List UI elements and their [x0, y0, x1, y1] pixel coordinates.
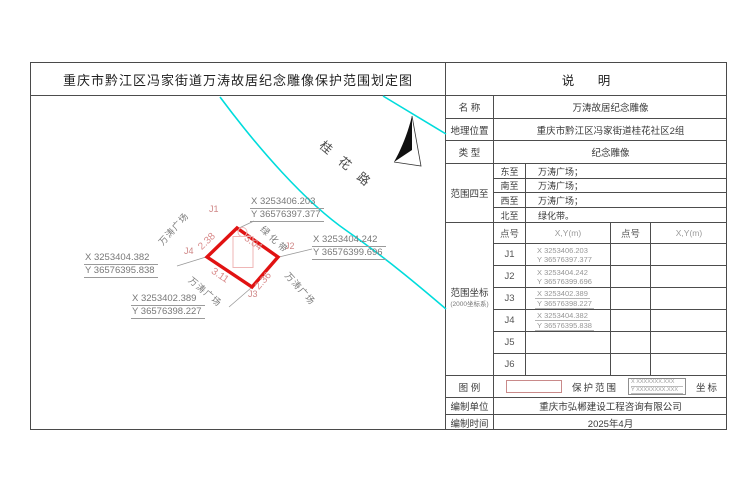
point-y: Y 36576399.696: [535, 277, 594, 286]
bounds-value-west: 万涛广场；: [526, 193, 727, 207]
map-coord-j4-y: Y 36576395.838: [84, 265, 158, 278]
point-xy: X 3253404.382 Y 36576395.838: [526, 310, 610, 331]
point-id: J1: [494, 244, 525, 265]
bounds-dir-east: 东至: [494, 164, 525, 178]
point-y: Y 36576398.227: [535, 299, 594, 309]
unit-value: 重庆市弘郴建设工程咨询有限公司: [494, 398, 727, 414]
row-label-name: 名 称: [446, 96, 493, 118]
bounds-dir-north: 北至: [494, 208, 525, 222]
map-coord-j3: X 3253402.389 Y 36576398.227: [131, 293, 205, 319]
coords-label-main: 范围坐标: [450, 288, 488, 299]
map-coord-j3-y: Y 36576398.227: [131, 306, 205, 319]
protection-range-label: 保护范围: [572, 380, 618, 394]
map-coord-j1: X 3253406.203 Y 36576397.377: [250, 196, 324, 222]
bounds-value-south: 万涛广场；: [526, 179, 727, 192]
map-point-id-j4: J4: [184, 246, 194, 256]
unit-label: 编制单位: [446, 398, 493, 414]
map-point-id-j3: J3: [248, 289, 258, 299]
xy-header: X,Y(m): [526, 223, 610, 243]
map-coord-j2-y: Y 36576399.696: [312, 247, 386, 260]
bounds-dir-west: 西至: [494, 193, 525, 207]
legend-content: 保护范围 X XXXXXXX.XXX Y XXXXXXXX.XXX 坐标: [494, 376, 727, 397]
point-x: X 3253404.242: [535, 268, 590, 277]
bounds-value-north: 绿化带。: [526, 208, 727, 222]
protection-range-symbol: [506, 380, 562, 393]
drawing-sheet: 重庆市黔江区冯家街道万涛故居纪念雕像保护范围划定图 说 明 名 称 万涛故居纪念…: [0, 0, 756, 482]
map-coord-j1-x: X 3253406.203: [250, 196, 324, 209]
point-y: Y 36576395.838: [535, 321, 594, 331]
row-value-name: 万涛故居纪念雕像: [494, 96, 727, 118]
coordinate-symbol: X XXXXXXX.XXX Y XXXXXXXX.XXX: [628, 378, 686, 395]
map-point-id-j1: J1: [209, 204, 219, 214]
row-value-location: 重庆市黔江区冯家街道桂花社区2组: [494, 119, 727, 140]
point-y: Y 36576397.377: [535, 255, 594, 264]
point-id: J4: [494, 310, 525, 331]
point-id: J2: [494, 266, 525, 287]
xy-header-2: X,Y(m): [651, 223, 727, 243]
map-coord-j4-x: X 3253404.382: [84, 252, 158, 265]
point-id: J3: [494, 288, 525, 309]
point-xy: X 3253402.389 Y 36576398.227: [526, 288, 610, 309]
bounds-value-east: 万涛广场；: [526, 164, 727, 178]
map-coord-j3-x: X 3253402.389: [131, 293, 205, 306]
row-label-location: 地理位置: [446, 119, 493, 140]
map-coord-j2: X 3253404.242 Y 36576399.696: [312, 234, 386, 260]
point-xy: X 3253404.242 Y 36576399.696: [526, 266, 610, 287]
map-coord-j2-x: X 3253404.242: [312, 234, 386, 247]
point-id: J5: [494, 332, 525, 353]
coordinate-symbol-x: X XXXXXXX.XXX: [631, 379, 683, 387]
coords-label-sub: (2000坐标系): [450, 299, 488, 310]
row-label-type: 类 型: [446, 141, 493, 163]
bounds-label: 范围四至: [446, 164, 493, 222]
point-x: X 3253402.389: [535, 289, 590, 299]
notes-title: 说 明: [446, 63, 726, 95]
coords-label: 范围坐标 (2000坐标系): [446, 223, 493, 375]
point-xy: X 3253406.203 Y 36576397.377: [526, 244, 610, 265]
map-coord-j1-y: Y 36576397.377: [250, 209, 324, 222]
point-xy: [526, 354, 610, 375]
date-value: 2025年4月: [494, 415, 727, 430]
legend-label: 图 例: [446, 376, 493, 397]
coordinate-legend-label: 坐标: [696, 380, 719, 394]
point-xy: [526, 332, 610, 353]
date-label: 编制时间: [446, 415, 493, 430]
map-coord-j4: X 3253404.382 Y 36576395.838: [84, 252, 158, 278]
point-no-header: 点号: [494, 223, 525, 243]
coordinate-symbol-y: Y XXXXXXXX.XXX: [631, 387, 683, 395]
row-value-type: 纪念雕像: [494, 141, 727, 163]
point-x: X 3253406.203: [535, 246, 590, 255]
bounds-dir-south: 南至: [494, 179, 525, 192]
point-id: J6: [494, 354, 525, 375]
drawing-title: 重庆市黔江区冯家街道万涛故居纪念雕像保护范围划定图: [31, 63, 445, 95]
point-no-header-2: 点号: [611, 223, 650, 243]
point-x: X 3253404.382: [535, 311, 590, 321]
